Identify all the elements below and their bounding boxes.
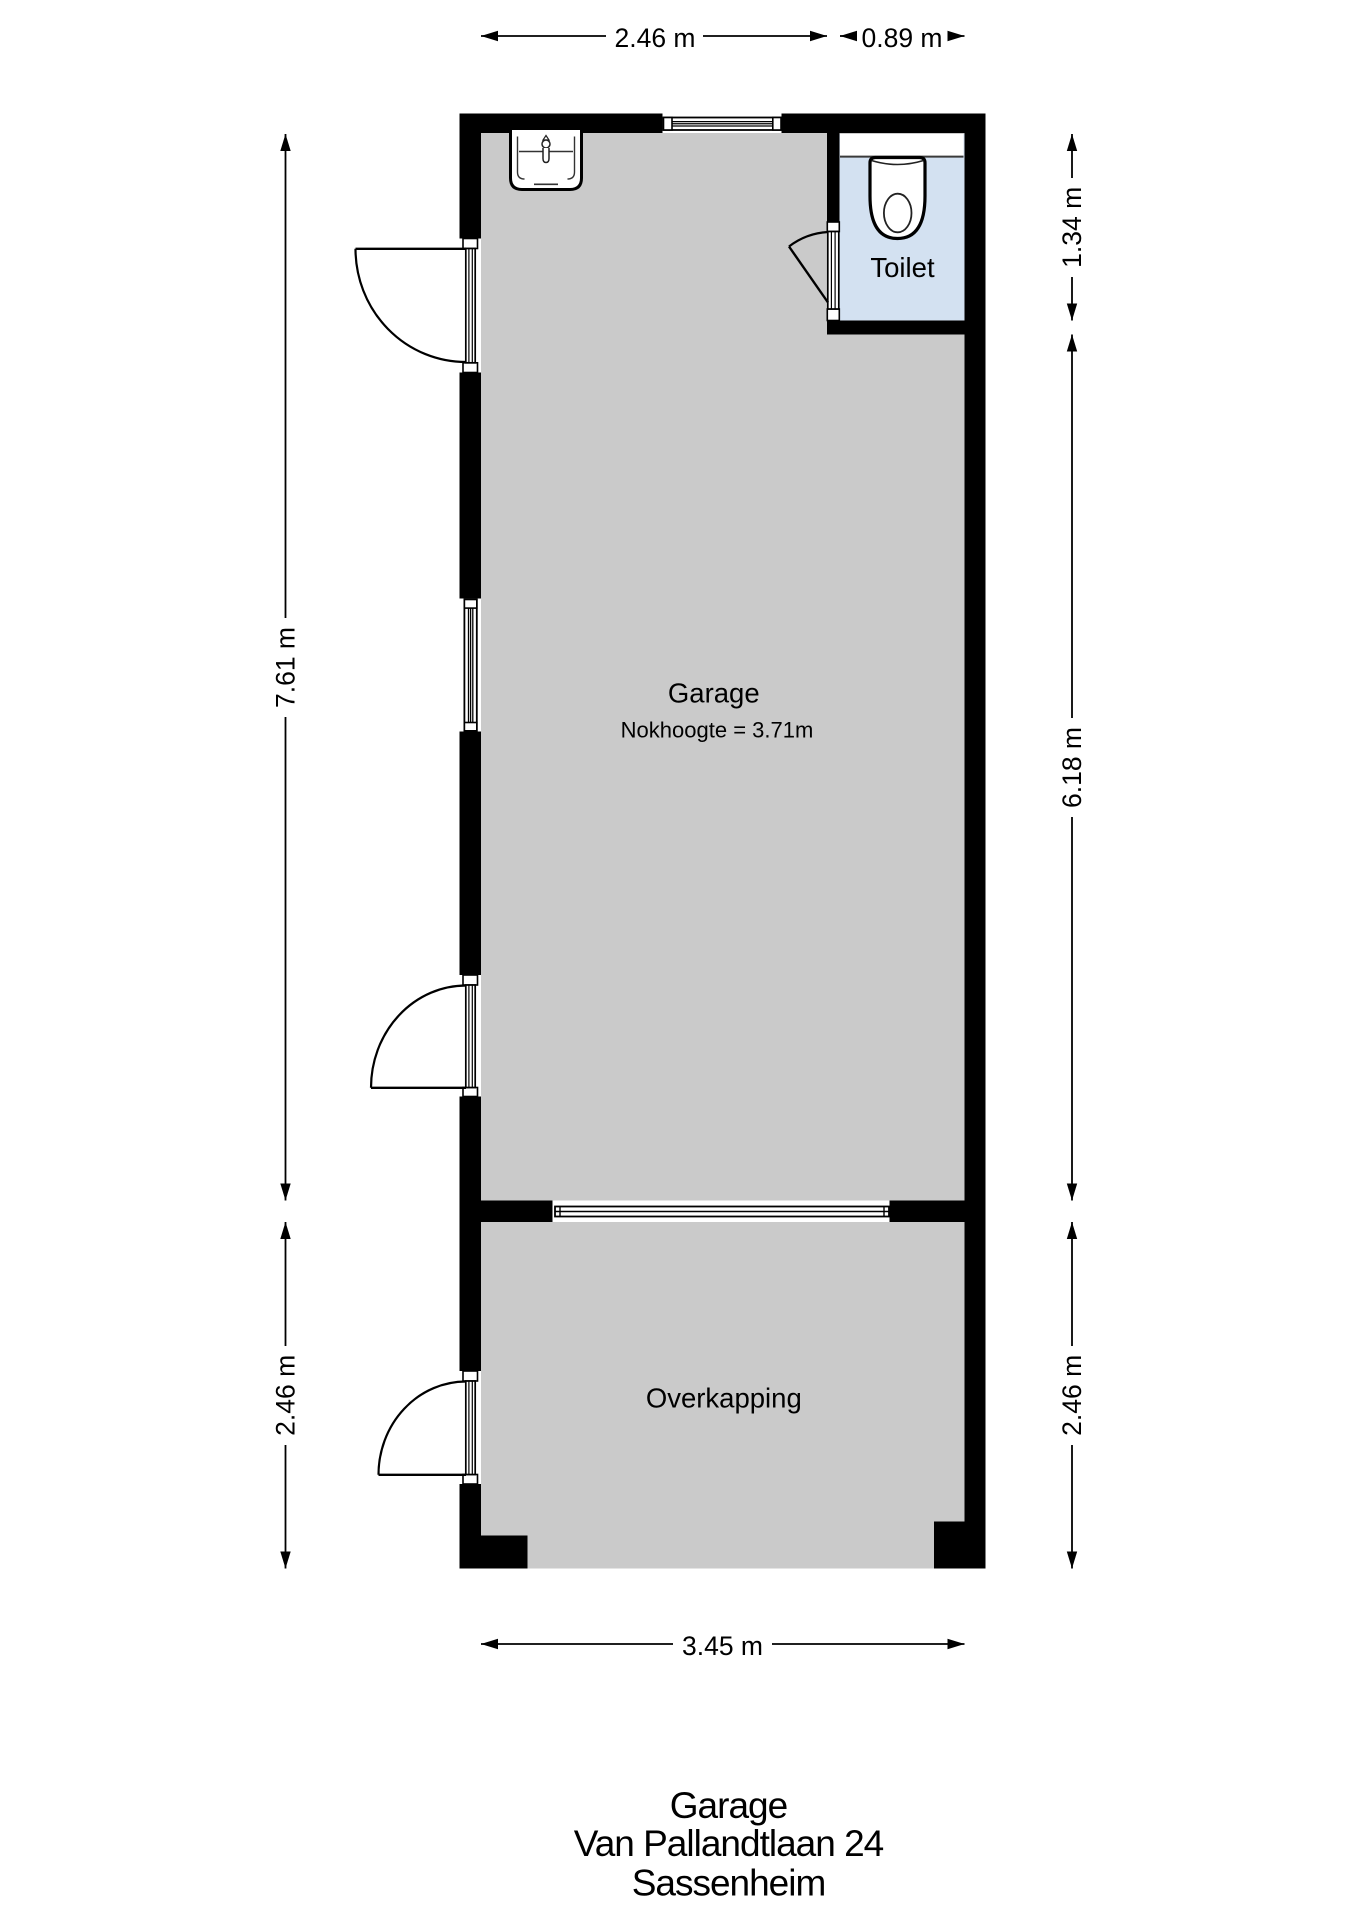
svg-text:0.89 m: 0.89 m bbox=[861, 23, 942, 53]
svg-text:6.18 m: 6.18 m bbox=[1057, 727, 1087, 808]
svg-text:Van Pallandtlaan 24: Van Pallandtlaan 24 bbox=[574, 1823, 884, 1864]
svg-text:Garage: Garage bbox=[668, 677, 760, 708]
svg-text:Garage: Garage bbox=[670, 1785, 787, 1826]
svg-text:Overkapping: Overkapping bbox=[646, 1383, 802, 1414]
svg-text:2.46 m: 2.46 m bbox=[271, 1355, 301, 1436]
svg-text:2.46 m: 2.46 m bbox=[614, 23, 695, 53]
svg-text:Nokhoogte = 3.71m: Nokhoogte = 3.71m bbox=[621, 718, 814, 743]
svg-text:2.46 m: 2.46 m bbox=[1057, 1355, 1087, 1436]
svg-text:Sassenheim: Sassenheim bbox=[632, 1862, 826, 1903]
svg-text:1.34 m: 1.34 m bbox=[1057, 187, 1087, 268]
svg-text:Toilet: Toilet bbox=[870, 252, 935, 283]
svg-text:3.45 m: 3.45 m bbox=[682, 1631, 763, 1661]
svg-text:7.61 m: 7.61 m bbox=[271, 627, 301, 708]
